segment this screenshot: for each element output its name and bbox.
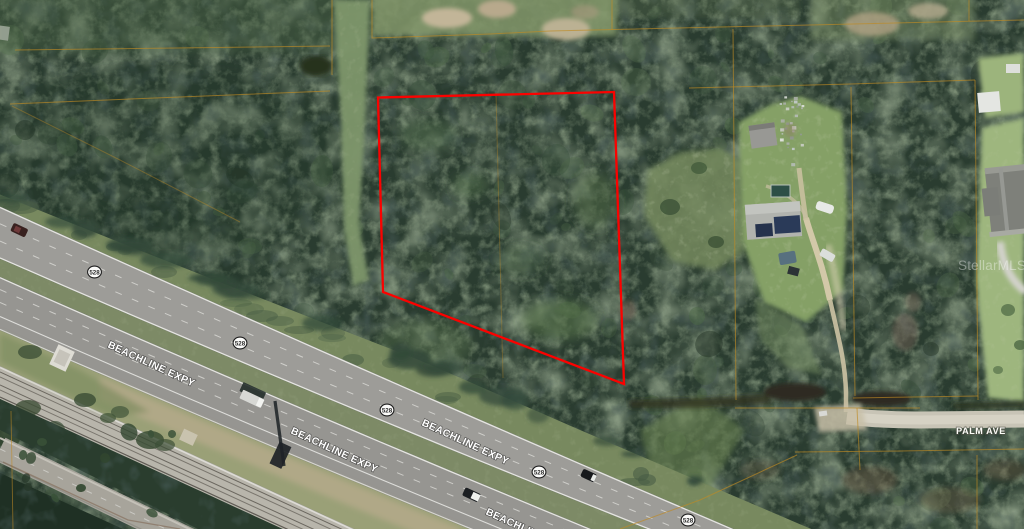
svg-text:528: 528 — [534, 469, 545, 476]
svg-text:StellarMLS: StellarMLS — [958, 258, 1024, 273]
svg-text:PALM AVE: PALM AVE — [956, 426, 1006, 436]
svg-text:528: 528 — [235, 340, 246, 347]
svg-text:528: 528 — [89, 269, 100, 276]
svg-text:528: 528 — [382, 407, 393, 414]
svg-text:528: 528 — [683, 517, 694, 524]
